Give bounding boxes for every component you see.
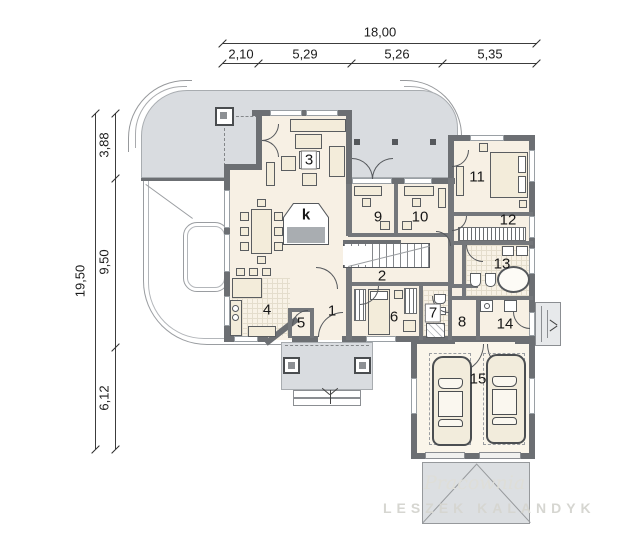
porch-step [293,398,361,406]
porch-column [283,357,300,374]
desk [354,186,382,196]
room-label-2: 2 [378,269,386,284]
chair [274,242,283,251]
wall-segment [411,453,425,459]
chair [274,227,283,236]
chair [402,221,412,230]
wall-segment [448,178,454,288]
wardrobe-rail [458,227,526,241]
garage-door [479,452,521,459]
sink [502,246,514,256]
sofa [329,146,345,177]
terrace-post [392,139,398,145]
wall-segment [310,308,314,338]
window [529,150,535,182]
watermark-name: LESZEK KALANDYK [383,500,596,516]
dim-left-total: 19,50 [73,265,88,298]
stair-handrail [343,240,401,244]
sofa [290,119,346,132]
desk [404,186,434,196]
dim-left-seg-3: 6,12 [97,385,112,410]
bar-stool [262,268,271,276]
shower [426,323,445,338]
room-label-15: 15 [470,372,487,387]
floor-plan: 18,00 2,10 5,29 5,26 5,35 19,50 3,88 9,5… [0,0,638,556]
dim-top-total: 18,00 [362,25,399,40]
roof-dashed-line [236,116,258,117]
chair [257,199,266,207]
dim-top-seg-2: 5,29 [290,47,319,62]
wall-segment [521,453,535,459]
hob-burner [232,305,239,312]
window [270,110,302,116]
pillow [518,156,526,173]
dim-left-seg-1: 3,88 [97,132,112,157]
garage-door [425,452,465,459]
dim-left-seg-2: 9,50 [97,249,112,274]
window [224,190,230,228]
room-label-9: 9 [374,210,382,225]
room-label-7: 7 [425,304,441,323]
side-entry-step-line [541,306,542,342]
terrace-post [430,139,436,145]
room-label-5: 5 [297,316,305,331]
bar-stool [236,268,245,276]
nightstand [394,290,403,299]
chair [240,212,249,221]
wall-segment [394,184,398,233]
window [411,378,417,414]
kitchen-island [248,326,276,337]
kitchen-counter [232,278,262,298]
toilet [470,273,481,287]
washer-drum [484,303,490,309]
armchair [281,156,296,171]
room-label-4: 4 [263,303,271,318]
dryer [504,300,517,312]
nightstand [519,200,527,208]
armchair [403,320,416,332]
room-label-1: 1 [328,304,336,319]
window [529,248,535,274]
room-label-3: 3 [301,151,317,170]
fireplace-label: k [302,208,310,223]
porch-roof-dashed [285,345,369,346]
fireplace-hearth [287,227,325,243]
watermark-script: Pracownia [424,472,525,494]
wall-segment [462,245,466,296]
window [224,234,230,272]
room-label-12: 12 [500,213,517,228]
porch-column [354,357,371,374]
dim-top-seg-1: 2,10 [226,47,255,62]
tv-cabinet [266,162,275,186]
sink [516,246,528,256]
room-label-8: 8 [458,315,466,330]
nightstand [479,143,488,152]
window [470,135,504,141]
room-label-13: 13 [494,257,511,272]
wall-segment [346,184,352,236]
window [529,378,535,414]
side-table [302,173,317,186]
wardrobe [404,288,417,314]
chair [274,212,283,221]
dim-line-top-total [223,43,537,44]
car-icon [486,354,526,444]
side-entry-step-line [547,310,548,338]
dim-line-top-segments [223,63,537,64]
room-label-6: 6 [390,310,398,325]
car-icon [432,356,472,446]
hob-burner [232,314,239,321]
chair [240,227,249,236]
dresser [456,166,464,196]
dining-table [251,209,272,254]
chair [362,198,371,207]
entry-arrow-stem [330,390,331,404]
room-label-14: 14 [497,317,514,332]
bidet [485,273,496,287]
bar-stool [249,268,258,276]
loveseat [295,134,322,149]
terrace-post [354,139,360,145]
room-label-10: 10 [412,210,429,225]
dim-line-left-segments [115,113,116,449]
dim-top-seg-3: 5,26 [382,47,411,62]
chair [412,198,421,207]
wall-segment [346,268,352,340]
window [306,110,338,116]
terrace-column [215,107,234,126]
room-label-11: 11 [469,170,485,185]
window [529,216,535,238]
dim-top-seg-4: 5,35 [475,47,504,62]
wall-segment [419,286,423,340]
chair [240,242,249,251]
wall-segment [465,453,479,459]
cabinet [438,188,446,208]
window [404,178,432,184]
chair [257,256,266,264]
pillow [518,176,526,193]
terrace-planter-inner [187,226,225,288]
